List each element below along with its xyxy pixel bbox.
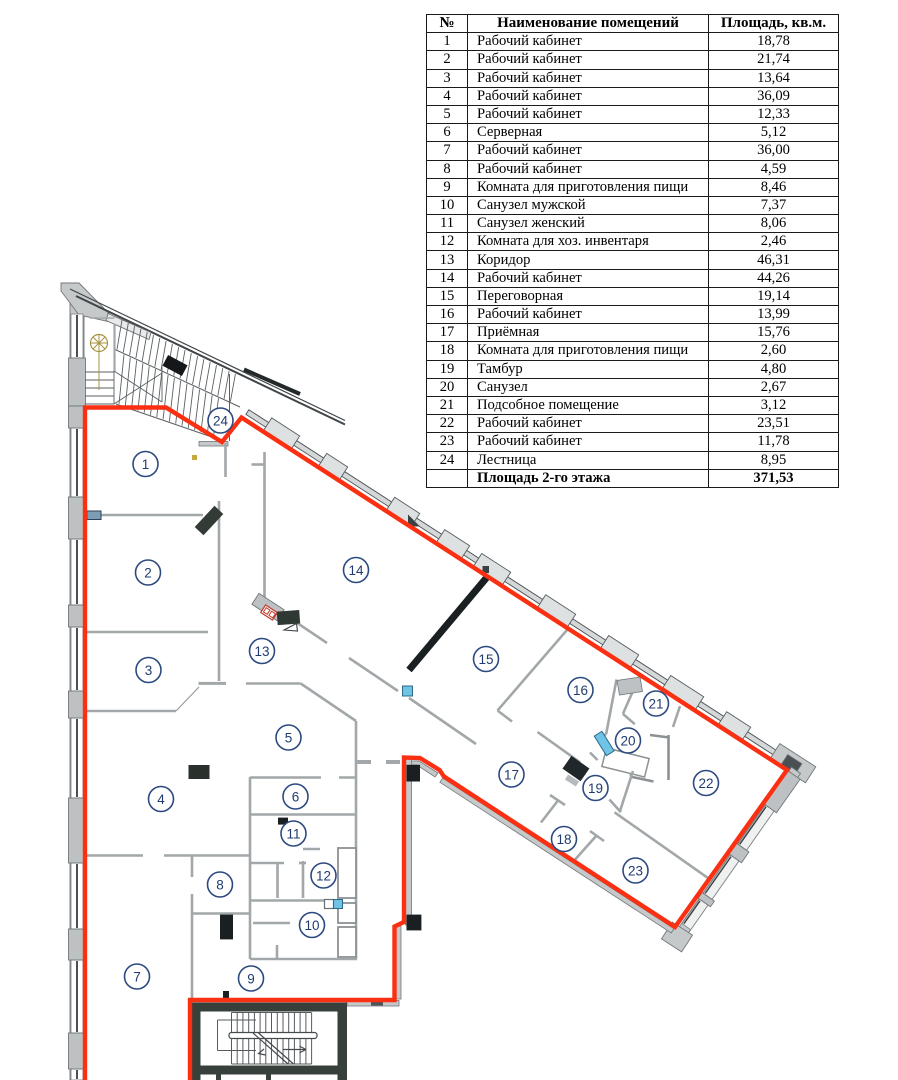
svg-text:6: 6 — [292, 789, 300, 804]
svg-text:10: 10 — [304, 918, 319, 933]
svg-text:15: 15 — [478, 652, 493, 667]
svg-text:13: 13 — [254, 644, 269, 659]
svg-text:5: 5 — [285, 730, 293, 745]
svg-text:9: 9 — [247, 971, 255, 986]
svg-text:14: 14 — [348, 563, 364, 578]
svg-text:2: 2 — [144, 565, 152, 580]
svg-text:3: 3 — [145, 663, 153, 678]
svg-text:1: 1 — [142, 457, 150, 472]
svg-text:8: 8 — [216, 877, 224, 892]
svg-text:17: 17 — [504, 767, 519, 782]
svg-text:18: 18 — [556, 832, 571, 847]
svg-text:21: 21 — [648, 696, 663, 711]
svg-text:20: 20 — [620, 733, 635, 748]
svg-text:4: 4 — [157, 792, 165, 807]
svg-text:12: 12 — [316, 868, 331, 883]
svg-text:22: 22 — [698, 776, 713, 791]
svg-text:16: 16 — [573, 683, 588, 698]
svg-text:11: 11 — [286, 826, 300, 841]
svg-text:24: 24 — [213, 413, 229, 428]
svg-text:19: 19 — [588, 781, 603, 796]
svg-text:23: 23 — [628, 863, 643, 878]
svg-text:7: 7 — [133, 969, 141, 984]
